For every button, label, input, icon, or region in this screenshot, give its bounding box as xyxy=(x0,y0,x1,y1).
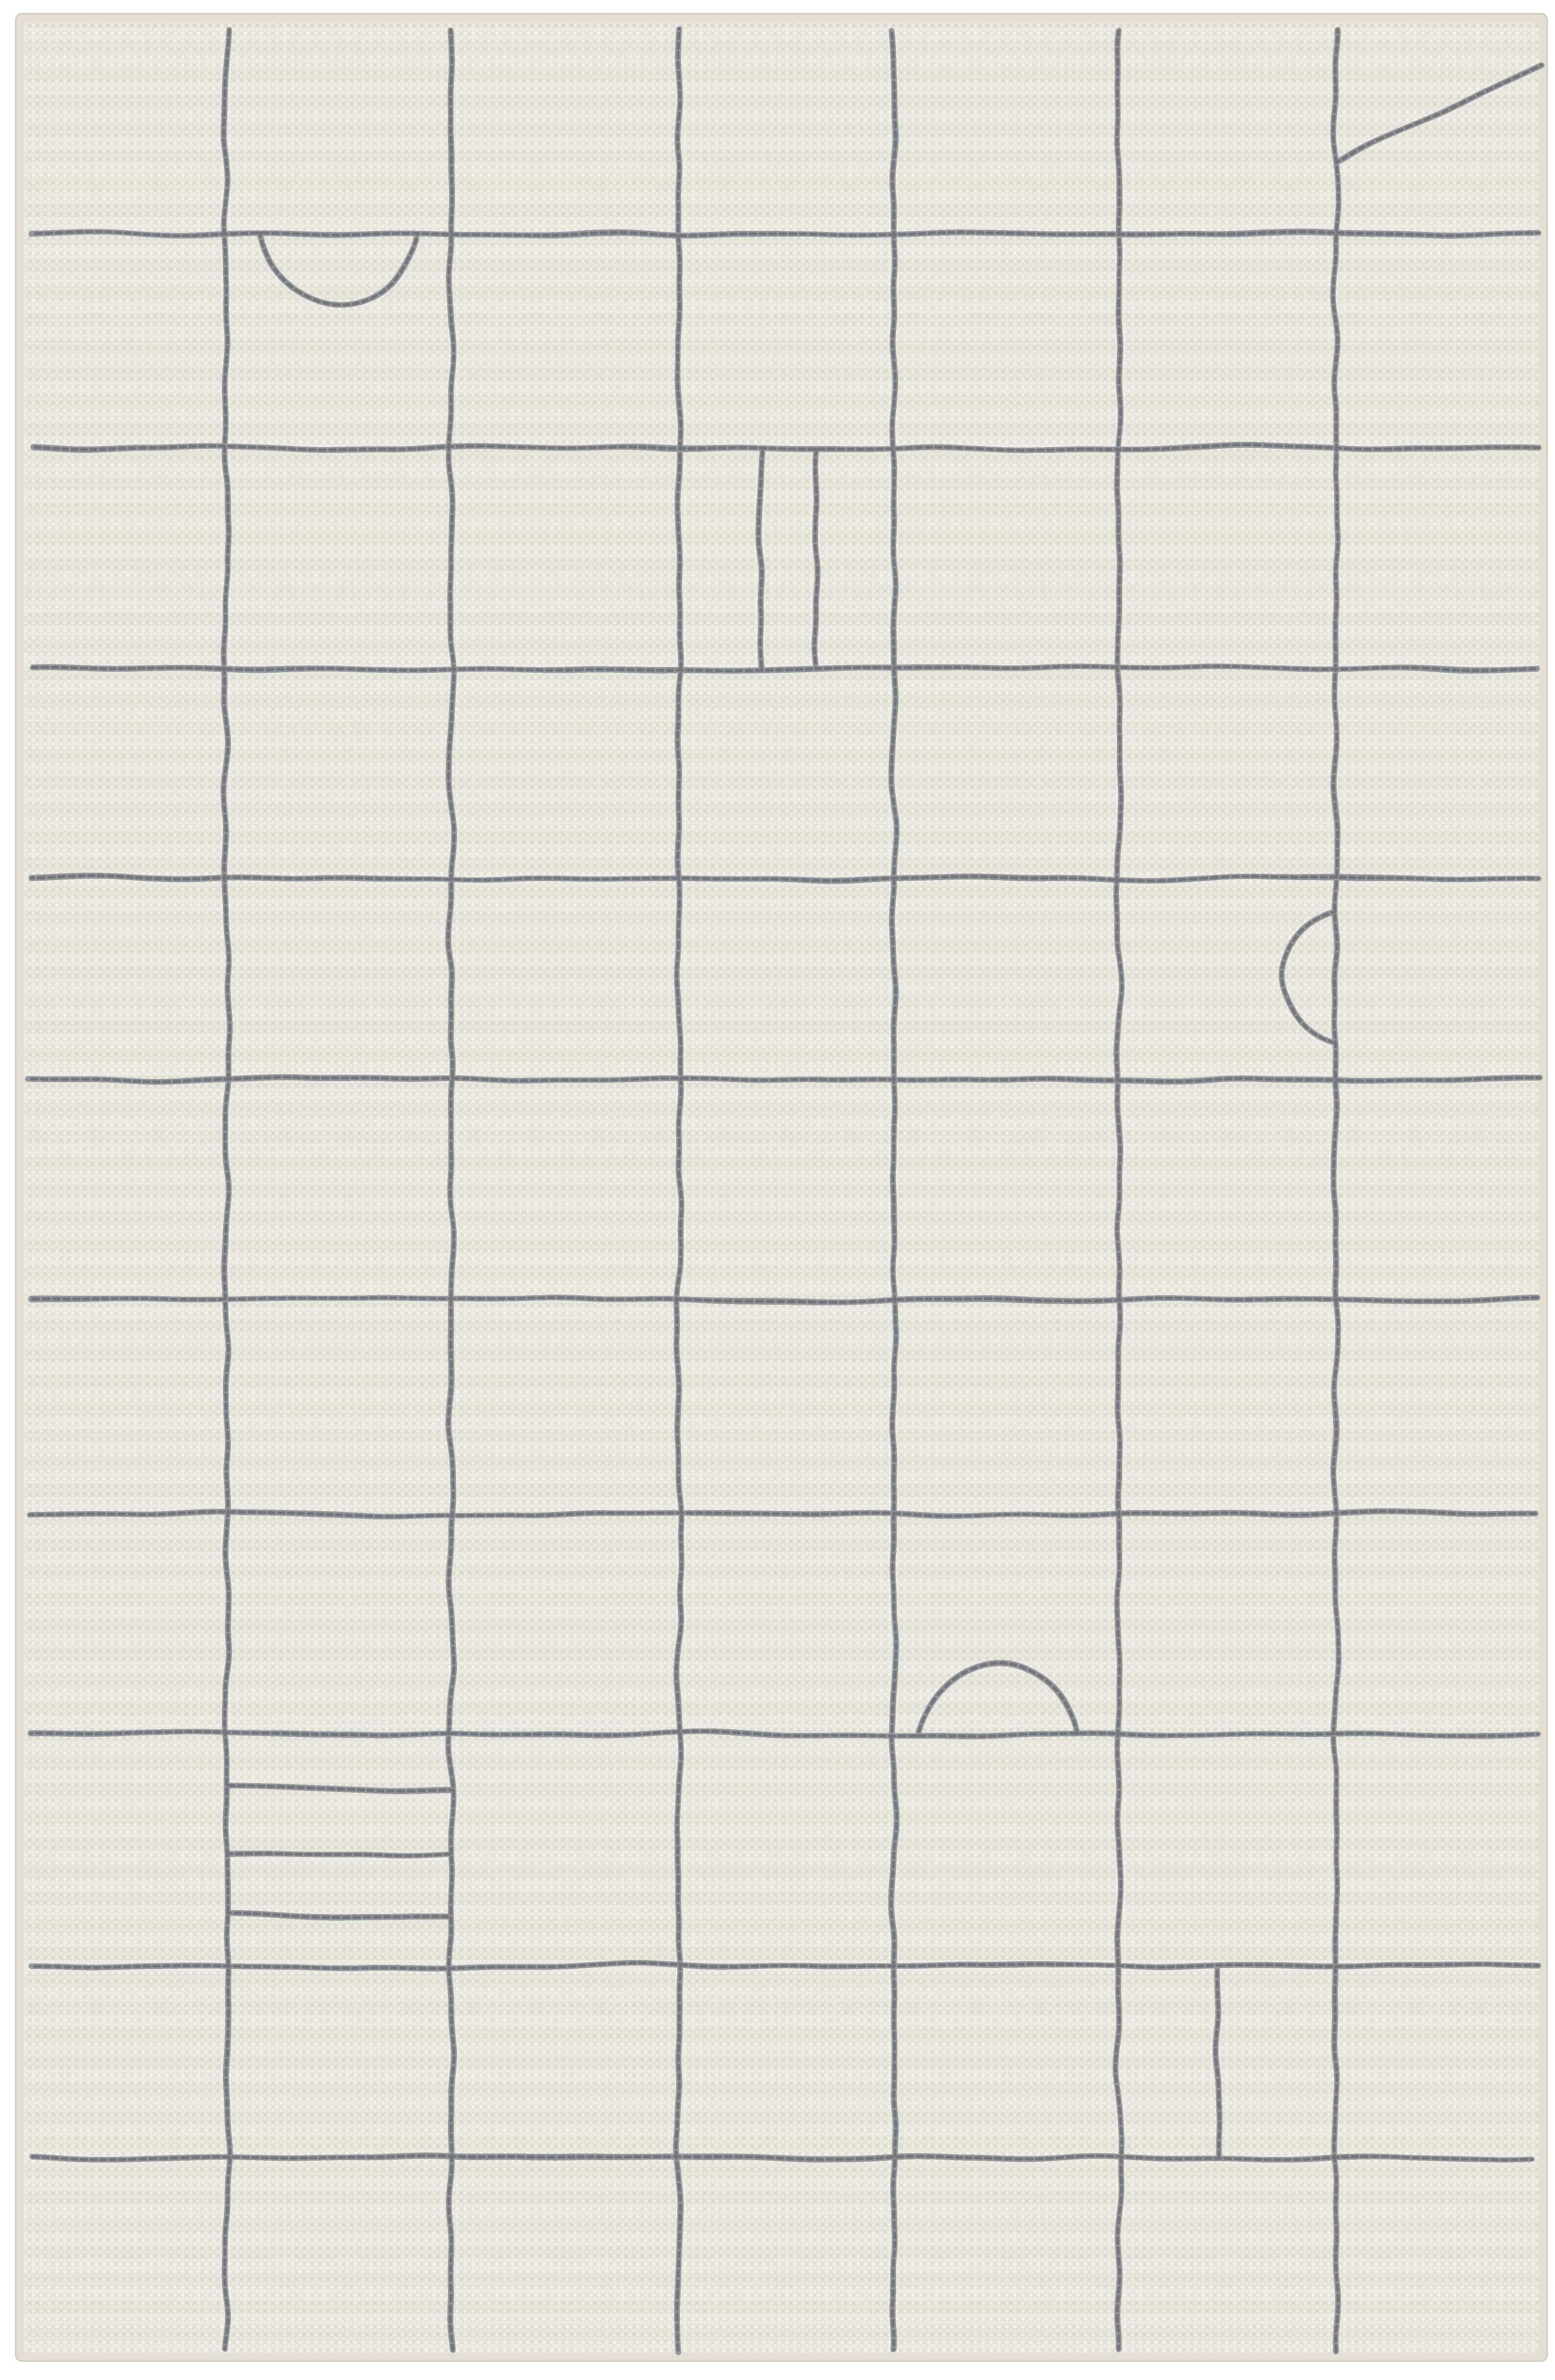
rug-product-photo xyxy=(0,0,1555,2380)
rug-photo xyxy=(0,0,1555,2380)
rug-weave-striations xyxy=(24,22,1539,2353)
rug-body xyxy=(16,14,1547,2361)
